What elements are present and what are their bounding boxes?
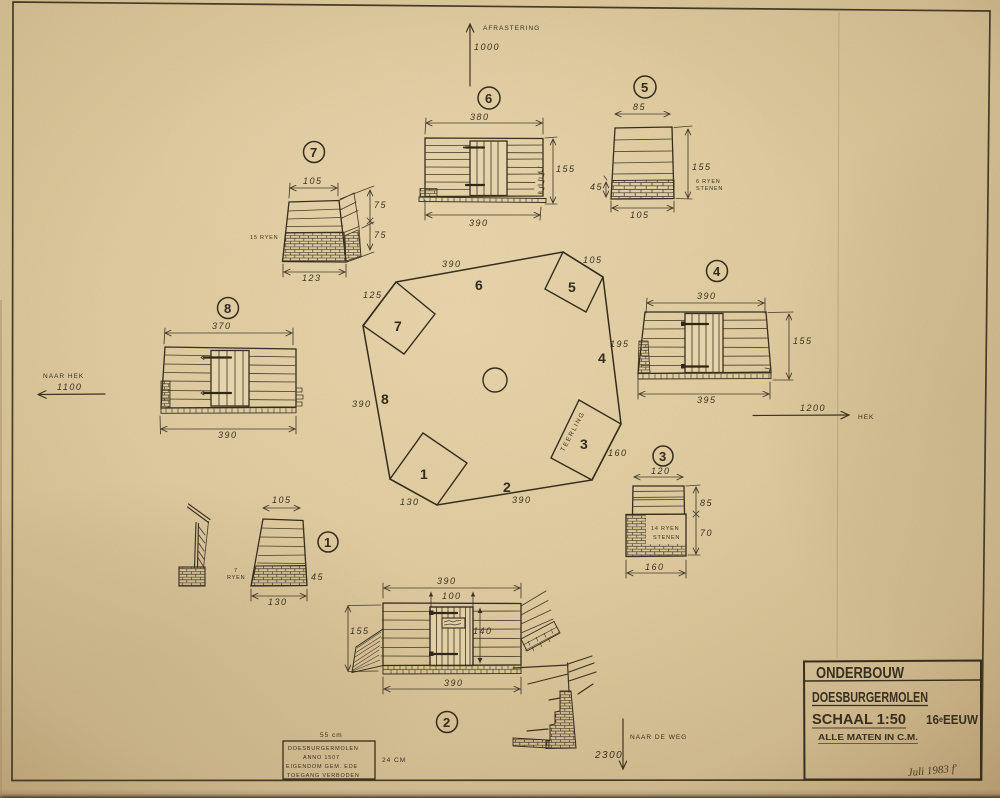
svg-text:2300: 2300 <box>594 750 623 761</box>
svg-text:195: 195 <box>610 339 630 349</box>
svg-text:7: 7 <box>234 568 238 574</box>
svg-text:380: 380 <box>470 112 490 122</box>
svg-text:8: 8 <box>381 391 389 407</box>
svg-text:45: 45 <box>590 182 603 192</box>
svg-text:390: 390 <box>469 218 489 228</box>
svg-text:130: 130 <box>268 597 288 607</box>
svg-text:6 RYEN: 6 RYEN <box>696 179 721 185</box>
svg-text:6: 6 <box>475 277 483 293</box>
svg-text:7: 7 <box>310 145 317 160</box>
svg-text:370: 370 <box>212 321 232 331</box>
svg-text:105: 105 <box>630 210 650 220</box>
svg-text:DOESBURGERMOLEN: DOESBURGERMOLEN <box>288 746 359 752</box>
svg-text:SCHAAL 1:50: SCHAAL 1:50 <box>812 711 906 728</box>
svg-text:RYEN: RYEN <box>227 575 245 581</box>
svg-text:3: 3 <box>580 436 588 452</box>
svg-text:395: 395 <box>697 395 717 405</box>
svg-text:15 RYEN: 15 RYEN <box>250 235 278 241</box>
svg-text:24 CM: 24 CM <box>382 757 406 764</box>
svg-text:155: 155 <box>793 336 813 346</box>
svg-text:140: 140 <box>473 626 493 636</box>
svg-text:105: 105 <box>272 495 292 505</box>
svg-text:1000: 1000 <box>474 42 500 52</box>
svg-text:123: 123 <box>302 273 322 283</box>
svg-text:155: 155 <box>350 626 370 636</box>
svg-text:390: 390 <box>218 430 238 440</box>
svg-text:105: 105 <box>583 255 603 265</box>
svg-text:2: 2 <box>503 479 511 495</box>
svg-text:6: 6 <box>485 91 492 106</box>
svg-text:390: 390 <box>352 399 372 409</box>
svg-text:ALLE MATEN IN C.M.: ALLE MATEN IN C.M. <box>818 732 918 742</box>
svg-text:390: 390 <box>444 678 464 688</box>
svg-text:4: 4 <box>713 264 721 279</box>
svg-text:1: 1 <box>420 466 428 482</box>
svg-text:DOESBURGERMOLEN: DOESBURGERMOLEN <box>812 689 928 706</box>
svg-text:100: 100 <box>442 591 462 601</box>
svg-text:45: 45 <box>311 572 324 582</box>
svg-text:1: 1 <box>324 535 331 550</box>
svg-text:130: 130 <box>400 497 420 507</box>
svg-text:390: 390 <box>437 576 457 586</box>
svg-text:75: 75 <box>374 200 387 210</box>
svg-text:85: 85 <box>633 102 646 112</box>
svg-text:7: 7 <box>394 318 402 334</box>
svg-text:5: 5 <box>568 279 576 295</box>
svg-text:8: 8 <box>224 301 231 316</box>
svg-text:160: 160 <box>645 562 665 572</box>
svg-text:390: 390 <box>442 259 462 269</box>
svg-text:70: 70 <box>700 528 713 538</box>
svg-text:155: 155 <box>556 164 576 174</box>
svg-text:16eEEUW: 16eEEUW <box>926 712 979 727</box>
svg-text:AFRASTERING: AFRASTERING <box>483 25 540 32</box>
svg-text:EIGENDOM GEM. EDE: EIGENDOM GEM. EDE <box>286 764 358 770</box>
svg-text:STENEN: STENEN <box>696 186 723 192</box>
svg-text:85: 85 <box>700 498 713 508</box>
svg-text:1200: 1200 <box>800 403 826 413</box>
svg-text:STENEN: STENEN <box>653 535 680 541</box>
svg-text:HEK: HEK <box>858 414 874 421</box>
svg-text:4: 4 <box>598 350 606 366</box>
svg-text:ONDERBOUW: ONDERBOUW <box>816 665 905 682</box>
svg-text:1100: 1100 <box>57 382 82 392</box>
svg-text:14 RYEN: 14 RYEN <box>651 526 679 532</box>
svg-text:2: 2 <box>443 715 450 730</box>
svg-text:120: 120 <box>651 466 671 476</box>
svg-text:TOEGANG VERBODEN: TOEGANG VERBODEN <box>287 773 360 779</box>
svg-text:NAAR DE WEG: NAAR DE WEG <box>630 734 687 741</box>
svg-text:105: 105 <box>303 176 323 186</box>
svg-text:155: 155 <box>692 162 712 172</box>
svg-text:5: 5 <box>641 80 648 95</box>
svg-text:55 cm: 55 cm <box>320 732 343 739</box>
svg-text:ANNO 1507: ANNO 1507 <box>303 755 340 761</box>
svg-text:75: 75 <box>374 230 387 240</box>
svg-text:NAAR HEK: NAAR HEK <box>43 373 84 380</box>
svg-text:125: 125 <box>363 290 383 300</box>
svg-text:390: 390 <box>697 291 717 301</box>
svg-text:3: 3 <box>659 449 666 464</box>
svg-text:160: 160 <box>608 448 628 458</box>
svg-text:390: 390 <box>512 495 532 505</box>
